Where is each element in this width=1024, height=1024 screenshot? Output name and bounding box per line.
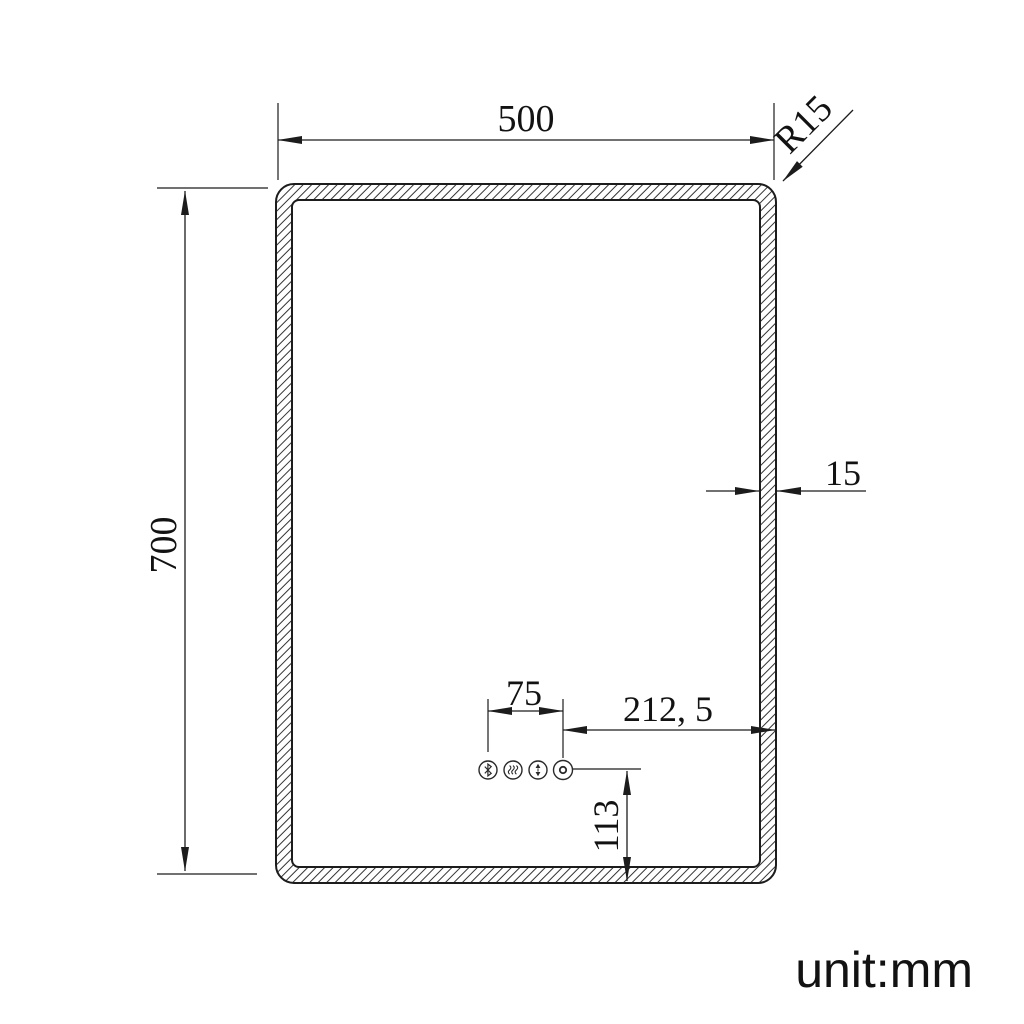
- dimension-frame-thickness: 15: [706, 453, 866, 493]
- dimmer-icon: [529, 761, 547, 779]
- dimension-offset-right-label: 212, 5: [623, 689, 713, 729]
- dimension-offset-bottom-label: 113: [586, 800, 626, 853]
- mirror-dimension-diagram: 500 R15 700 15 75 212, 5 113: [0, 0, 1024, 1024]
- mirror-frame-outline: [276, 184, 776, 883]
- dimension-radius-label: R15: [766, 87, 841, 162]
- dimension-width-label: 500: [498, 98, 555, 140]
- dimension-offset-bottom: 113: [573, 769, 641, 881]
- technical-drawing-page: 500 R15 700 15 75 212, 5 113: [0, 0, 1024, 1024]
- dimension-width: 500: [278, 98, 774, 180]
- dimension-height-label: 700: [143, 517, 185, 574]
- dimension-button-pitch: 75: [488, 673, 563, 758]
- dimension-offset-right: 212, 5: [563, 689, 775, 730]
- dimension-height: 700: [143, 188, 268, 874]
- defogger-heat-icon: [504, 761, 522, 779]
- touch-button-row: [479, 761, 573, 780]
- unit-note: unit:mm: [795, 942, 973, 998]
- mirror-frame: [276, 184, 776, 883]
- dimension-corner-radius: R15: [766, 87, 853, 181]
- indicator-dot-icon: [554, 761, 573, 780]
- bluetooth-icon: [479, 761, 497, 779]
- dimension-thickness-label: 15: [825, 453, 861, 493]
- dimension-pitch-label: 75: [506, 673, 542, 713]
